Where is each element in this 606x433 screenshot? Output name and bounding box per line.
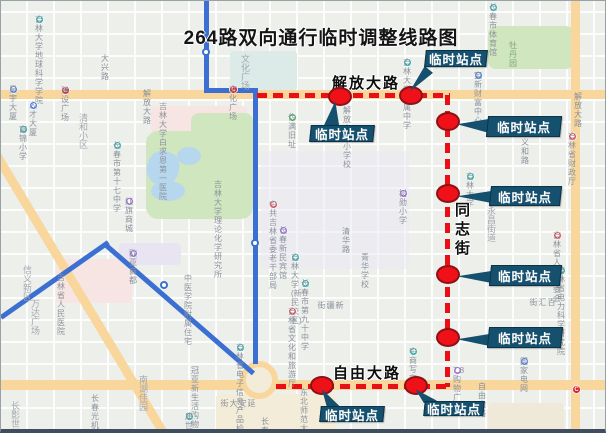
map-poi-label-text: 百汇街 bbox=[529, 298, 556, 307]
temp-station-callout: 临时站点 bbox=[486, 116, 562, 137]
map-poi-label-text: 义和路 bbox=[521, 138, 529, 165]
map-poi-label-text: 吉林大学白求恩 第一医院 bbox=[159, 102, 167, 201]
map-poi-label-text: 长春解放纪念碑 bbox=[261, 417, 269, 433]
original-route-stop-dot bbox=[160, 281, 168, 289]
map-poi-label-text: 解放大路 bbox=[143, 89, 151, 125]
map-poi-label-text: 牡丹园 bbox=[509, 41, 517, 68]
temp-station-dot bbox=[399, 86, 423, 105]
temp-station-dot bbox=[328, 87, 352, 106]
temp-station-dot bbox=[404, 376, 428, 395]
peony-park-area bbox=[488, 26, 574, 69]
map-poi-label-text: 树勋小学 bbox=[399, 189, 407, 225]
temp-station-callout-label: 临时站点 bbox=[315, 124, 369, 143]
temp-station-callout-label: 临时站点 bbox=[429, 49, 483, 68]
lake bbox=[177, 147, 201, 165]
temp-station-callout: 临时站点 bbox=[424, 50, 488, 67]
street-label-tongzhi-jie: 同志街 bbox=[451, 202, 472, 259]
map-poi-label-text: 吉林大学理论化学 研究所 bbox=[214, 180, 222, 279]
map-poi-label-text: 星宇大厦 bbox=[9, 85, 17, 121]
map-poi-label-text: 长春市第九十 中学 bbox=[301, 279, 309, 351]
block-area bbox=[488, 403, 564, 431]
map-poi-label-text: 东北师范大学 附属中学 bbox=[300, 388, 308, 433]
temp-station-callout-label: 临时站点 bbox=[498, 328, 552, 347]
temp-station-callout-label: 临时站点 bbox=[498, 266, 552, 285]
map-poi-label-text: 红旗商城 bbox=[125, 197, 133, 233]
map-poi-label-text: 清华路 bbox=[342, 227, 350, 254]
map-poi-label-text: 吉林省财政厅 bbox=[568, 132, 576, 186]
map-poi-label-text: 吉林省文化 和旅游厅 bbox=[288, 307, 296, 388]
map-poi-label-text: 宝新财富中心 bbox=[474, 71, 482, 125]
map-poi-label-text: 长春市体育馆 bbox=[489, 3, 497, 57]
temp-station-callout-label: 临时站点 bbox=[497, 117, 551, 136]
map-poi-label-text: 康世国际 bbox=[185, 412, 193, 433]
map-poi-label-text: 中共吉林省 委老干部局 bbox=[269, 200, 277, 290]
temp-station-callout: 临时站点 bbox=[309, 125, 375, 142]
temp-station-callout: 临时站点 bbox=[487, 327, 563, 348]
poi-metro-pin-icon: C bbox=[572, 385, 581, 394]
road-yatai-dajie bbox=[571, 1, 580, 433]
temp-station-callout: 临时站点 bbox=[319, 406, 385, 422]
map-poi-label-text: 长春新民宾馆 bbox=[279, 226, 287, 280]
map-poi-label-text: 吉林省人民医院 bbox=[57, 273, 65, 336]
temp-station-callout: 临时站点 bbox=[489, 186, 562, 206]
temp-station-dot bbox=[436, 328, 460, 347]
map-poi-label-text: 南湖佳园 bbox=[139, 376, 148, 412]
map-poi-label-text: 建设广场 bbox=[61, 86, 69, 122]
map-poi-label-text: 青华学校 bbox=[361, 253, 369, 289]
lake bbox=[151, 181, 185, 201]
map-poi-label-text: 大兴路 bbox=[101, 54, 109, 81]
temp-station-dot bbox=[436, 112, 460, 131]
street-label-ziyou-dalu: 自由大路 bbox=[333, 362, 401, 383]
temp-station-dot bbox=[436, 265, 460, 284]
map-poi-label-text: 新疆街 bbox=[317, 301, 344, 310]
temp-station-callout-label: 临时站点 bbox=[325, 405, 379, 424]
map-poi-label-text: 吉林大学地球 科学学院 bbox=[35, 15, 43, 105]
map-poi-label-text: 延安大街 bbox=[220, 399, 256, 408]
map-poi-label-text: 永昌街道 bbox=[487, 207, 496, 243]
temp-station-callout: 临时站点 bbox=[489, 265, 562, 286]
map-poi-label-text: 人才大厦 bbox=[29, 101, 37, 137]
map-poi-label-text: 清和小区 bbox=[79, 114, 88, 150]
map-poi-label-text: 富锦小学 bbox=[19, 125, 27, 161]
map-poi-label-text: 长春光机与物理 研究所第八小区 bbox=[91, 394, 99, 433]
map-poi-label-text: 吉林省电子信息 产品检验研究院 bbox=[236, 343, 244, 433]
map-poi-label-text: 伪满旧址 bbox=[288, 113, 296, 149]
temp-station-dot bbox=[310, 376, 334, 395]
bus-route-adjustment-map[interactable]: 吉林大学地球 科学学院大兴路星宇大厦人才大厦富锦小学清和小区长春市第十七 中学C… bbox=[0, 0, 606, 433]
map-poi-label-text: 长影世纪村 bbox=[11, 402, 20, 433]
original-route-stop-dot bbox=[251, 239, 259, 247]
map-poi-label-text: 长春市第十七 中学 bbox=[113, 141, 121, 213]
original-route-line bbox=[253, 88, 258, 364]
map-poi-label-text: 文化广场 bbox=[241, 55, 250, 91]
map-poi-label-text: 万达广场 bbox=[31, 300, 40, 336]
map-poi-label-text: 国家电网 bbox=[520, 357, 528, 393]
callout-pointer bbox=[456, 117, 490, 135]
map-poi-label-text: 文化广场 bbox=[229, 85, 237, 121]
temp-station-callout-label: 临时站点 bbox=[498, 187, 552, 206]
map-poi-label-text: 中医学院 附属住宅 bbox=[184, 274, 192, 346]
park-area bbox=[191, 113, 253, 153]
callout-pointer bbox=[456, 332, 490, 348]
map-title: 264路双向通行临时调整线路图 bbox=[171, 23, 471, 50]
map-poi-label-text: 信义新区 bbox=[23, 266, 32, 302]
temp-station-dot bbox=[436, 184, 460, 203]
map-poi-label-text: 解放大路 bbox=[574, 92, 582, 128]
temp-station-callout: 临时站点 bbox=[423, 401, 485, 416]
callout-pointer bbox=[456, 269, 492, 285]
temp-station-callout-label: 临时站点 bbox=[427, 399, 481, 418]
map-poi-label-text: 欧亚商都 bbox=[129, 249, 137, 285]
